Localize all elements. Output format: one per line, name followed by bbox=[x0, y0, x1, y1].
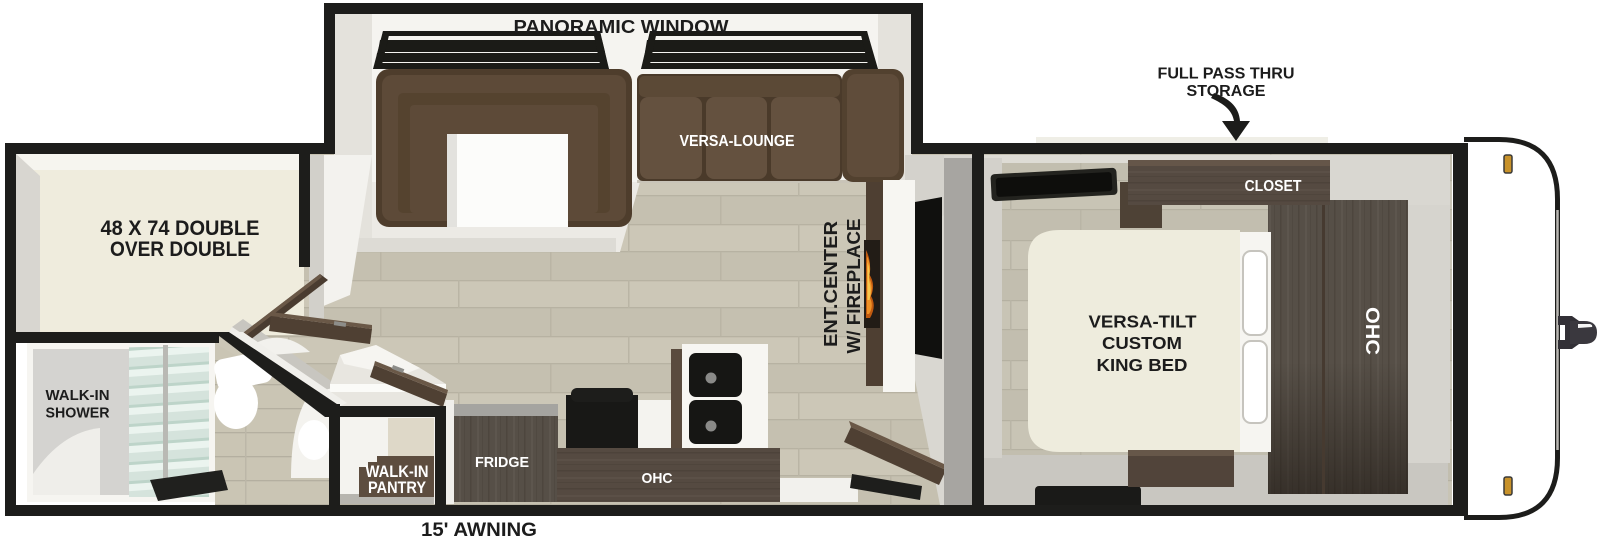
svg-text:FRIDGE: FRIDGE bbox=[475, 454, 529, 471]
svg-text:CUSTOM: CUSTOM bbox=[1102, 333, 1182, 353]
svg-text:WALK-IN: WALK-IN bbox=[46, 388, 110, 404]
svg-text:ENT.CENTER: ENT.CENTER bbox=[821, 221, 841, 347]
svg-text:15' AWNING: 15' AWNING bbox=[421, 520, 537, 540]
svg-text:KING BED: KING BED bbox=[1097, 355, 1188, 375]
svg-text:STORAGE: STORAGE bbox=[1187, 83, 1266, 100]
svg-text:W/ FIREPLACE: W/ FIREPLACE bbox=[844, 219, 864, 354]
svg-text:OHC: OHC bbox=[642, 470, 673, 487]
svg-text:VERSA-TILT: VERSA-TILT bbox=[1089, 312, 1197, 332]
svg-text:SHOWER: SHOWER bbox=[46, 406, 111, 422]
svg-text:48 X 74 DOUBLE: 48 X 74 DOUBLE bbox=[101, 217, 260, 240]
svg-text:PANORAMIC WINDOW: PANORAMIC WINDOW bbox=[514, 17, 729, 37]
svg-text:CLOSET: CLOSET bbox=[1245, 178, 1302, 195]
svg-text:PANTRY: PANTRY bbox=[368, 479, 426, 497]
svg-text:VERSA-LOUNGE: VERSA-LOUNGE bbox=[680, 133, 795, 150]
svg-text:OHC: OHC bbox=[1361, 307, 1382, 355]
svg-text:FULL PASS THRU: FULL PASS THRU bbox=[1158, 66, 1295, 83]
svg-text:OVER DOUBLE: OVER DOUBLE bbox=[110, 238, 250, 261]
